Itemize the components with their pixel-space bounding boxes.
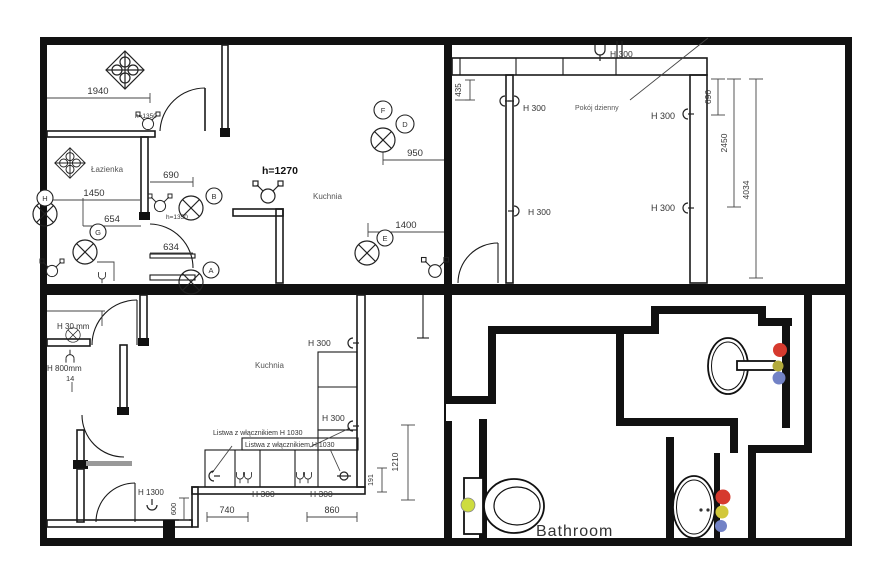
strip-label: Listwa z włącznikiem H 1030 (213, 430, 303, 437)
leader-line (630, 38, 708, 100)
dim-4034: 4034 (741, 180, 751, 199)
wall-lamp-icon (148, 194, 172, 212)
socket-height-label: H 300 (322, 413, 345, 423)
grid-borders (40, 37, 852, 546)
upper-basin (708, 338, 787, 394)
basin-handle (737, 361, 775, 370)
badge-b: B (211, 192, 216, 201)
dim-1450: 1450 (83, 188, 104, 199)
ceiling-light-icon (371, 128, 395, 152)
walls (452, 41, 707, 283)
door-opening (446, 404, 460, 421)
socket-icon (245, 472, 252, 483)
dim-690: 690 (163, 170, 179, 181)
badge-h: H (42, 194, 47, 203)
floor-plan-svg: 1940 690 1450 654 634 950 1400 (0, 0, 888, 579)
hot-valve-dot (716, 490, 731, 505)
height-note-14: 14 (66, 374, 74, 383)
socket-height-label: H 300 (528, 207, 551, 217)
lamp-height-label: H 300 (610, 49, 633, 59)
door-arc (82, 415, 124, 457)
strip-label: Listwa z włącznikiem H 1030 (245, 442, 335, 449)
toilet (461, 478, 544, 534)
ceiling-fixture-icon (106, 51, 144, 89)
height-note-h1300: H 1300 (138, 488, 164, 497)
door-arc (92, 300, 137, 345)
door-arc (160, 88, 205, 131)
cold-valve-dot (715, 520, 727, 532)
socket-icon (99, 272, 106, 283)
flush-button-dot (461, 498, 475, 512)
ceiling-light-icon (73, 240, 97, 264)
dim-191: 191 (368, 474, 375, 486)
shelf-band (86, 461, 132, 466)
dim-740: 740 (219, 505, 234, 515)
badge-f: F (381, 106, 386, 115)
dim-1400: 1400 (395, 220, 416, 231)
badge-e: E (382, 234, 387, 243)
badge-g: G (95, 228, 101, 237)
dim-634: 634 (163, 242, 179, 253)
room-label-lazienka: Łazienka (91, 165, 124, 174)
height-note-small: h=1350 (135, 113, 157, 120)
switch-icon (337, 472, 351, 480)
panel-top-left-plan: 1940 690 1450 654 634 950 1400 (33, 45, 449, 294)
dim-1210: 1210 (390, 452, 400, 471)
dim-1940: 1940 (87, 86, 108, 97)
room-label-kuchnia: Kuchnia (255, 361, 284, 370)
dim-2450: 2450 (719, 133, 729, 152)
ceiling-light-icon (355, 241, 379, 265)
wall-lamp-icon (66, 350, 74, 363)
door-arc (96, 483, 135, 522)
height-note-small: h=1350 (166, 214, 188, 221)
height-note-h800: H 800mm (47, 364, 82, 373)
socket-icon (305, 472, 312, 483)
floor-plan-figure: 1940 690 1450 654 634 950 1400 (0, 0, 888, 579)
room-label-kuchnia: Kuchnia (313, 192, 342, 201)
socket-height-label: H 300 (308, 338, 331, 348)
socket-icon (147, 499, 157, 510)
dim-654: 654 (104, 214, 120, 225)
dim-860: 860 (324, 505, 339, 515)
socket-height-label: H 300 (252, 489, 275, 499)
fixtures (66, 328, 359, 510)
dimensions: 740 860 600 1210 191 (169, 425, 415, 522)
badge-d: D (402, 120, 408, 129)
door-arc (458, 243, 498, 283)
room-label-pokoj-dzienny: Pokój dzienny (575, 105, 619, 112)
dim-435: 435 (454, 83, 463, 97)
socket-icon (237, 472, 244, 483)
socket-icon (209, 471, 220, 481)
room-label-bathroom: Bathroom (536, 523, 613, 540)
cold-valve-dot (773, 372, 786, 385)
socket-icon (683, 109, 694, 119)
mid-valve-dot (773, 361, 784, 372)
socket-icon (297, 472, 304, 483)
height-note-bold: h=1270 (262, 165, 298, 177)
socket-height-label: H 300 (651, 203, 675, 213)
panel-bottom-left-plan: 740 860 600 1210 191 Kuchnia H 30 mm H 8… (47, 295, 429, 538)
wall-lamp-icon (253, 181, 283, 203)
panel-top-right-plan: 435 690 2450 4034 H 300 H 300 H 300 H 30… (452, 38, 763, 283)
dim-600: 600 (169, 503, 178, 516)
socket-height-label: H 300 (523, 103, 546, 113)
socket-icon (683, 203, 694, 213)
mid-valve-dot (716, 506, 729, 519)
sink (673, 476, 731, 538)
badge-a: A (208, 266, 213, 275)
panel-bottom-right-plan: Bathroom (446, 284, 812, 543)
ceiling-fixture-icon (55, 148, 85, 178)
socket-height-label: H 300 (310, 489, 333, 499)
fixtures (500, 45, 694, 216)
socket-height-label: H 300 (651, 111, 675, 121)
hot-valve-dot (773, 343, 787, 357)
dim-690: 690 (703, 90, 713, 104)
height-note-h30: H 30 mm (57, 322, 90, 331)
dim-950: 950 (407, 148, 423, 159)
walls (47, 295, 429, 538)
